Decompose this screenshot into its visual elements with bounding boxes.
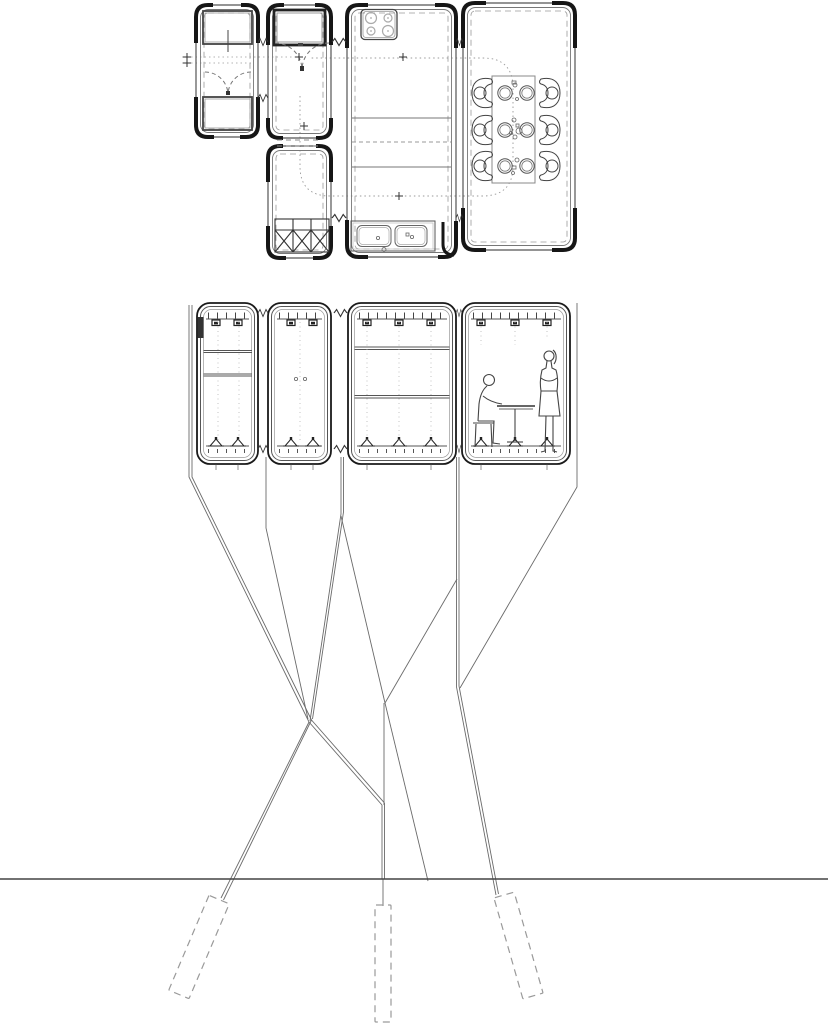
seated-person <box>473 375 502 448</box>
left-jamb <box>198 317 204 338</box>
brace-to-ground <box>385 703 428 881</box>
leg-prop-bc <box>313 457 344 719</box>
foundation-piles <box>169 892 543 1022</box>
section-break-symbols <box>258 310 462 453</box>
pile-left <box>169 895 229 998</box>
section-table <box>497 406 535 442</box>
architectural-drawing <box>0 0 828 1024</box>
bed-2 <box>203 97 252 130</box>
dining-table <box>492 76 535 183</box>
pile-right <box>494 892 543 999</box>
leg-prop-bc <box>310 457 341 721</box>
plan-module-a <box>196 5 258 137</box>
door-handles <box>294 377 306 380</box>
plan-module-d-dining <box>463 3 575 250</box>
leg-prop-ab <box>266 457 308 719</box>
door-meeting-stile <box>300 66 304 71</box>
leg-right-outrigger <box>460 303 577 688</box>
datum-lines <box>182 57 300 63</box>
plan-module-c-kitchen <box>347 5 456 257</box>
brace-left <box>341 516 385 703</box>
plus-marks <box>183 53 407 200</box>
support-legs <box>189 303 577 906</box>
floor-plan-view <box>182 3 575 258</box>
section-module-a <box>197 303 258 464</box>
roof-fixings <box>212 320 551 326</box>
section-view <box>197 303 570 470</box>
wall-segments <box>268 146 331 258</box>
brace-right <box>385 579 457 703</box>
section-module-c <box>348 303 456 464</box>
leg-prop-cd <box>457 457 497 895</box>
wall-segments <box>347 5 456 257</box>
platform-bed <box>274 10 325 46</box>
bed-1 <box>203 11 252 52</box>
plan-module-b-lockers <box>268 140 331 258</box>
door-meeting-stile <box>226 91 230 95</box>
leg-prop-cd <box>459 457 499 894</box>
ceiling-details <box>206 316 561 326</box>
plan-module-b-entry <box>268 5 331 138</box>
section-module-b <box>268 303 331 464</box>
interior-shelves <box>204 347 450 398</box>
counter-lines <box>352 118 451 167</box>
pile-center <box>375 905 391 1022</box>
module-joint-dashes <box>277 140 322 146</box>
standing-person <box>539 350 560 452</box>
locker-grid <box>275 219 329 252</box>
double-sink <box>351 221 435 252</box>
drawing-sheet <box>0 0 828 1024</box>
leg-left-outrigger <box>189 305 309 722</box>
cooktop-4-burner <box>361 10 397 40</box>
